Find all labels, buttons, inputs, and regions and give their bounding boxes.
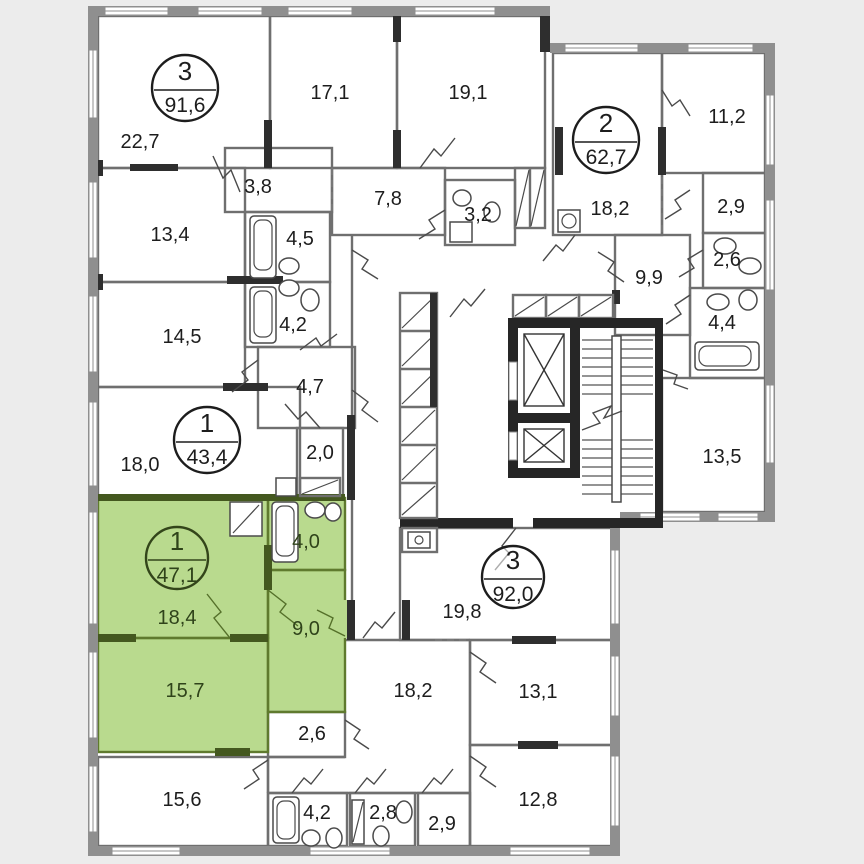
- room-label: 13,5: [703, 446, 742, 468]
- toilet-4-2t: [301, 289, 319, 311]
- wall-green-div1: [98, 634, 136, 642]
- floor-plan-stage: 22,7 17,1 19,1 3,8 13,4 4,5 7,8 3,2 18,2…: [0, 0, 864, 864]
- room-label: 4,2: [303, 802, 331, 824]
- room-label: 13,1: [519, 681, 558, 703]
- core-wall-top: [508, 318, 663, 328]
- apartment-total-area: 47,1: [157, 564, 198, 587]
- wall-green-bottom-seg: [215, 748, 250, 756]
- apartment-rooms-count: 2: [599, 108, 613, 138]
- stair-stringer: [612, 336, 621, 502]
- apartment-badge-92-0[interactable]: 3 92,0: [482, 545, 544, 608]
- core-wall-bottom-r: [533, 518, 663, 528]
- room-label: 3,2: [464, 204, 492, 226]
- sink-4-5a: [279, 258, 299, 274]
- elev-wall-mid: [508, 413, 580, 423]
- toilet-4-0: [325, 503, 341, 521]
- room-label: 4,7: [296, 376, 324, 398]
- room-label: 22,7: [121, 131, 160, 153]
- apartment-total-area: 92,0: [493, 583, 534, 606]
- room-label: 15,7: [166, 680, 205, 702]
- room-label: 2,9: [428, 813, 456, 835]
- core-wall-bottom-l: [400, 518, 513, 528]
- room-label: 2,6: [713, 249, 741, 271]
- toilet-4-2b: [326, 828, 342, 848]
- sink-4-5b: [279, 280, 299, 296]
- room-label: 18,4: [158, 607, 197, 629]
- room-label: 2,6: [298, 723, 326, 745]
- apartment-total-area: 91,6: [165, 94, 206, 117]
- sink-2-8: [396, 801, 412, 823]
- sink-2-0: [276, 478, 296, 496]
- apartment-badge-62-7[interactable]: 2 62,7: [573, 107, 639, 173]
- apartment-badge-43-4[interactable]: 1 43,4: [174, 407, 240, 473]
- elev-wall-right: [570, 318, 580, 478]
- room-label: 9,9: [635, 267, 663, 289]
- room-label: 13,4: [151, 224, 190, 246]
- apartment-rooms-count: 1: [200, 408, 214, 438]
- room-label: 18,2: [591, 198, 630, 220]
- sink-4-0: [305, 502, 325, 518]
- apartment-badge-91-6[interactable]: 3 91,6: [152, 55, 218, 121]
- core-wall-right: [655, 318, 663, 528]
- apartment-rooms-count: 1: [170, 526, 184, 556]
- room-label: 19,8: [443, 601, 482, 623]
- toilet-2-8: [373, 826, 389, 846]
- room-label: 18,2: [394, 680, 433, 702]
- room-label: 4,5: [286, 228, 314, 250]
- room-label: 18,0: [121, 454, 160, 476]
- apartment-rooms-count: 3: [178, 56, 192, 86]
- room-label: 12,8: [519, 789, 558, 811]
- room-label: 14,5: [163, 326, 202, 348]
- room-label: 4,2: [279, 314, 307, 336]
- room-label: 2,8: [369, 802, 397, 824]
- washer-apt2: [558, 210, 580, 232]
- room-label: 9,0: [292, 618, 320, 640]
- elev-wall-low: [508, 468, 580, 478]
- room-label: 3,8: [244, 176, 272, 198]
- room-label: 17,1: [311, 82, 350, 104]
- sink-4-4: [739, 290, 757, 310]
- room-label: 4,0: [292, 531, 320, 553]
- room-label: 4,4: [708, 312, 736, 334]
- sink-4-2b: [302, 830, 320, 846]
- apartment-total-area: 62,7: [586, 146, 627, 169]
- toilet-2-6a: [739, 258, 761, 274]
- wall-green-vert-seg: [264, 545, 272, 590]
- room-label: 19,1: [449, 82, 488, 104]
- room-label: 7,8: [374, 188, 402, 210]
- toilet-4-4: [707, 294, 729, 310]
- room-label: 2,9: [717, 196, 745, 218]
- room-label: 15,6: [163, 789, 202, 811]
- apartment-total-area: 43,4: [187, 446, 228, 469]
- room-label: 2,0: [306, 442, 334, 464]
- floor-plan: 22,7 17,1 19,1 3,8 13,4 4,5 7,8 3,2 18,2…: [0, 0, 864, 864]
- room-label: 11,2: [708, 106, 745, 128]
- wall-green-div2: [230, 634, 268, 642]
- apartment-rooms-count: 3: [506, 545, 520, 575]
